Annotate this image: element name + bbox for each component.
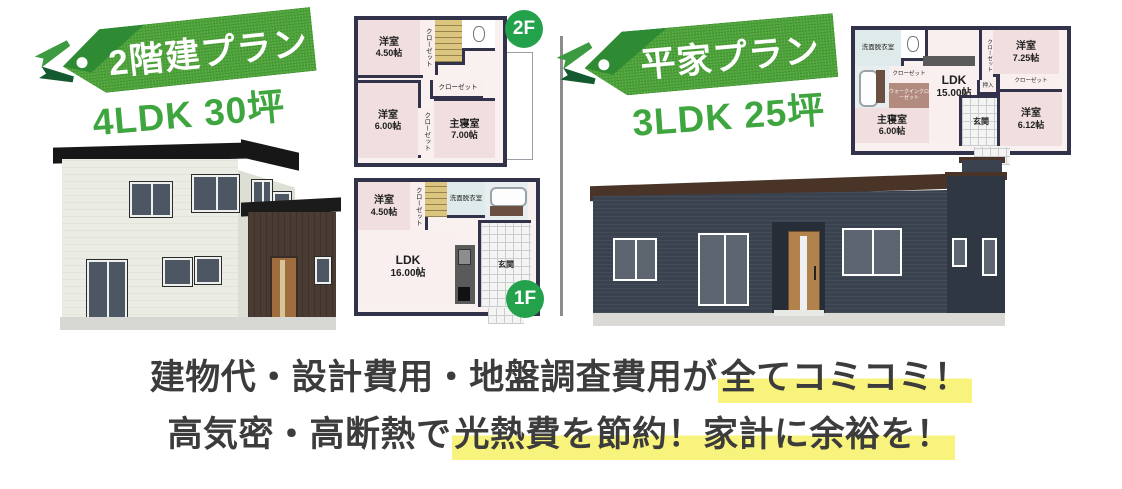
floorplan-2f: 洋室 4.50帖 クローゼット 洋室 6.00帖 クローゼット クローゼット 主…: [350, 10, 555, 162]
toilet-icon: [907, 36, 919, 52]
footer-line-2: 高気密・高断熱で光熱費を節約！家計に余裕を！: [0, 406, 1122, 457]
window: [130, 182, 172, 217]
bathroom: [485, 182, 528, 220]
window: [163, 258, 192, 286]
kitchen-counter: [923, 56, 975, 66]
toilet-room: [462, 20, 495, 51]
window: [87, 260, 127, 321]
window: [195, 257, 221, 284]
window: [698, 233, 749, 306]
front-door: [270, 256, 298, 326]
window: [315, 257, 331, 284]
floorplan-walls: 洗面脱衣室 クローゼット ウォークインクローゼット 主寝室 6.00帖 LDK …: [851, 26, 1071, 155]
closet: クローゼット: [430, 80, 483, 99]
stairs: [435, 20, 465, 65]
bathroom: [855, 66, 892, 111]
walk-in-closet: ウォークインクローゼット: [889, 83, 932, 111]
roof-side: [241, 139, 299, 170]
front-door: [788, 231, 820, 315]
floorplan-1f: 洋室 4.50帖 クローゼット 洗面脱衣室 LDK 16.00帖 玄: [350, 168, 555, 328]
footer-line-1-text: 建物代・設計費用・地盤調査費用が: [150, 358, 718, 397]
footer-line-2-highlight: 光熱費を節約！家計に余裕を！: [452, 415, 955, 460]
window: [982, 238, 997, 276]
window: [192, 175, 239, 212]
room-bedroom: 洋室 4.50帖: [358, 182, 413, 233]
housing-plan-flyer: 2階建プラン 4LDK 30坪 洋室 4.50帖 クローゼット: [0, 0, 1122, 489]
washroom: 洗面脱衣室: [447, 182, 488, 218]
footer-line-1: 建物代・設計費用・地盤調査費用が全てコミコミ！: [0, 349, 1122, 400]
footer-line-2-text: 高気密・高断熱で: [167, 415, 451, 454]
bath-mat: [876, 70, 885, 103]
closet-oshiire: 押入: [977, 80, 999, 95]
floorplan-single-story: 洗面脱衣室 クローゼット ウォークインクローゼット 主寝室 6.00帖 LDK …: [846, 14, 1122, 166]
floor-badge-1f: 1F: [506, 280, 544, 318]
window: [613, 238, 657, 281]
room-ldk: LDK 16.00帖: [358, 230, 458, 304]
room-master-bedroom: 主寝室 6.00帖: [855, 108, 932, 143]
floor-badge-2f: 2F: [505, 10, 543, 48]
room-bedroom: 洋室 7.25帖: [993, 30, 1059, 77]
two-story-house-render: [45, 140, 345, 335]
room-bedroom: 洋室 4.50帖: [358, 20, 423, 78]
foundation: [60, 317, 336, 330]
entrance-step: [774, 310, 824, 316]
room-bedroom: 洋室 6.12帖: [997, 89, 1062, 146]
single-story-house-render: [588, 152, 1018, 334]
entrance-hall: 玄関: [959, 95, 1000, 146]
washroom: 洗面脱衣室: [855, 30, 904, 69]
kitchen-counter: [455, 245, 475, 304]
section-divider: [560, 36, 563, 316]
toilet-icon: [473, 26, 485, 42]
room-master-bedroom: 主寝室 7.00帖: [434, 98, 495, 158]
window: [952, 238, 967, 267]
window: [842, 228, 902, 276]
footer-line-1-highlight: 全てコミコミ！: [718, 358, 973, 403]
bath-mat: [490, 206, 523, 216]
bathtub-icon: [490, 187, 527, 207]
floorplan-2f-walls: 洋室 4.50帖 クローゼット 洋室 6.00帖 クローゼット クローゼット 主…: [354, 16, 507, 167]
room-bedroom: 洋室 6.00帖: [358, 80, 421, 158]
